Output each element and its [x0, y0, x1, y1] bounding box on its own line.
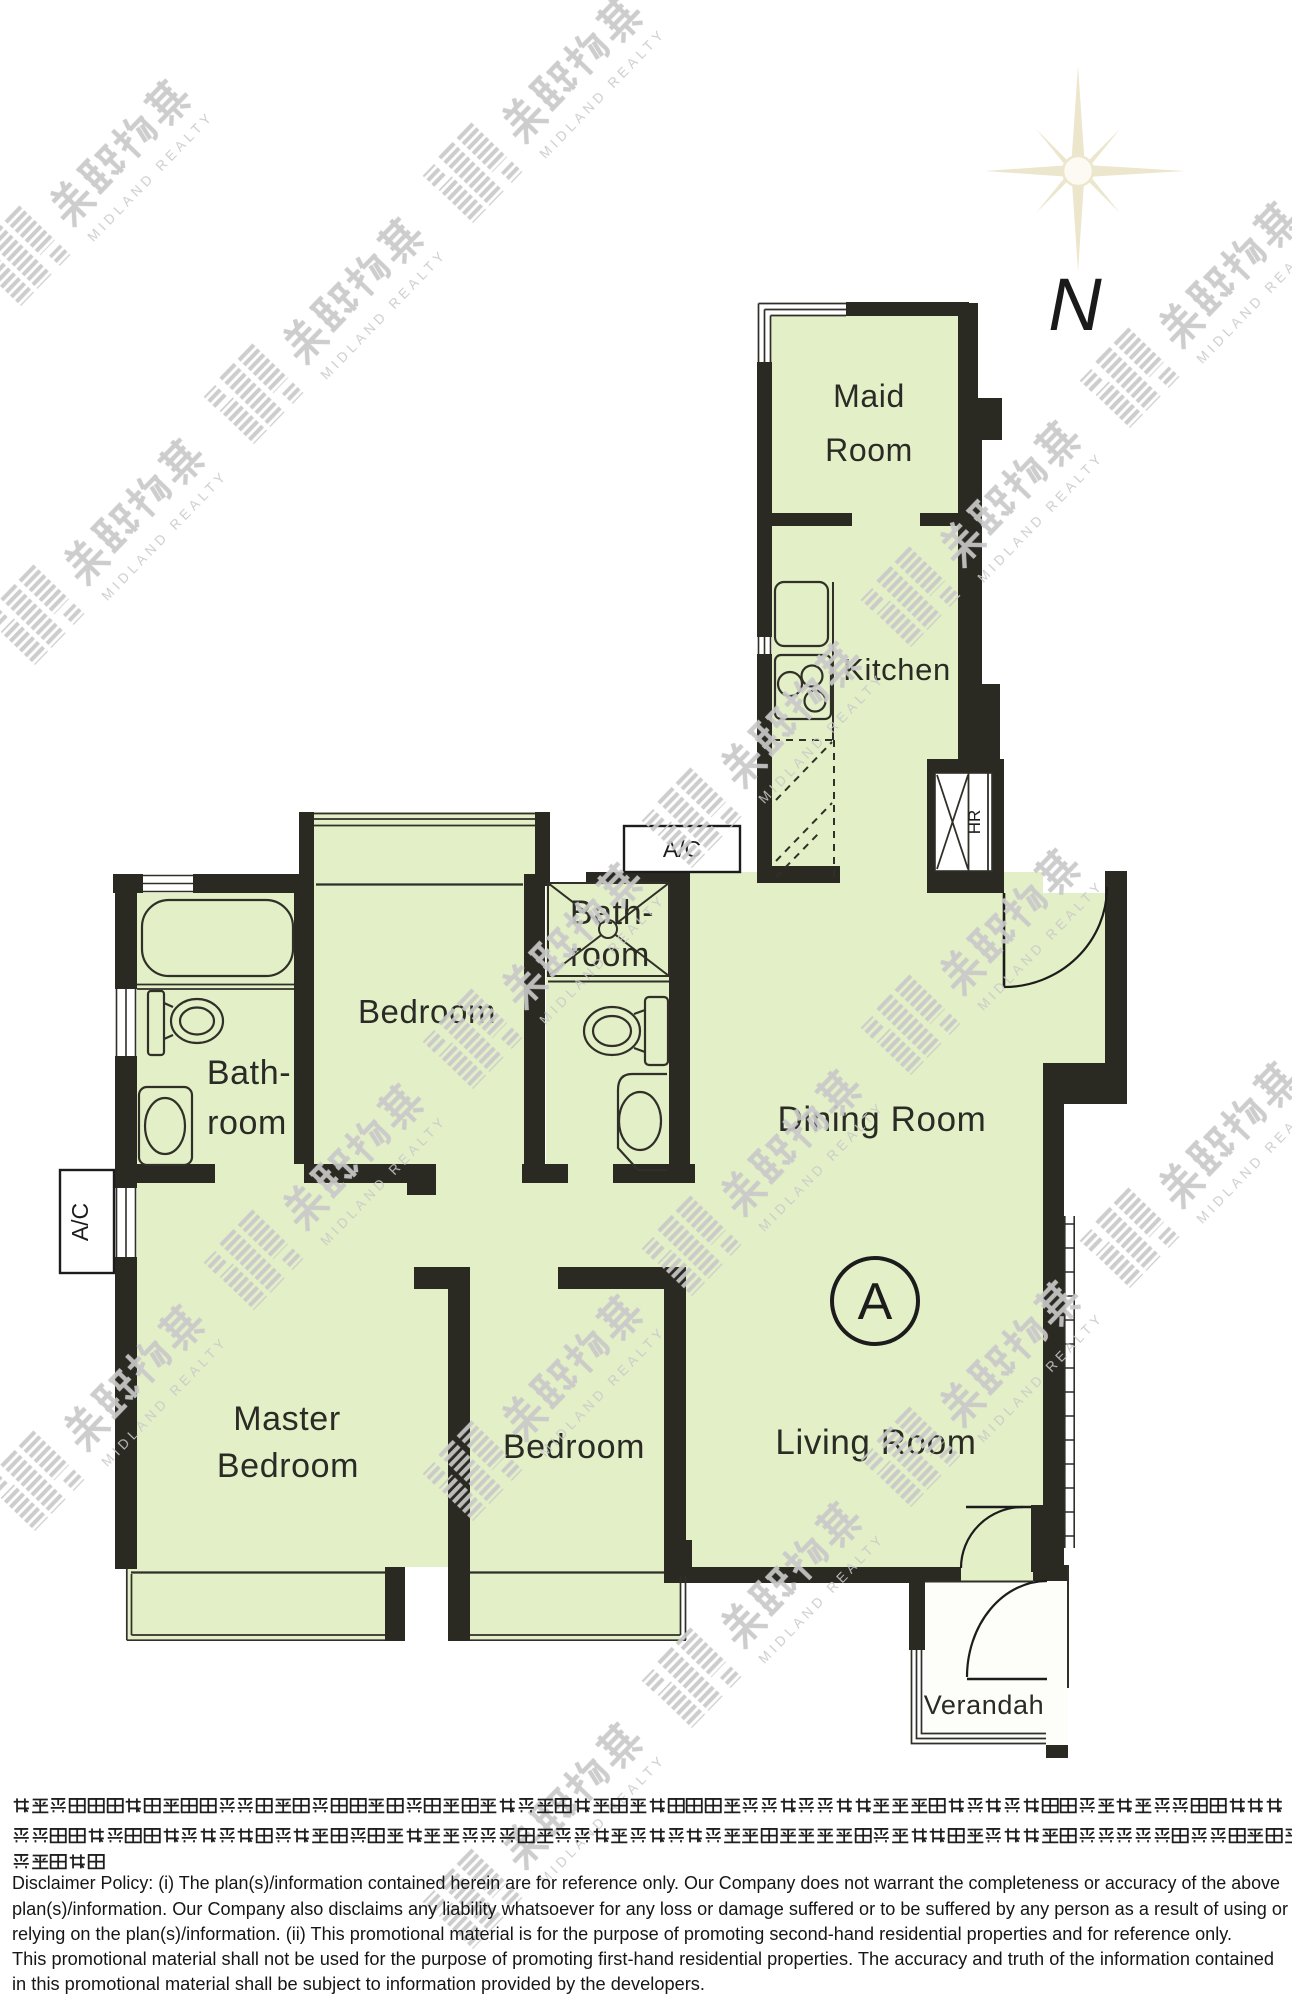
svg-text:room: room — [207, 1104, 287, 1142]
svg-text:Disclaimer Policy: (i) The pla: Disclaimer Policy: (i) The plan(s)/infor… — [12, 1872, 1280, 1893]
svg-text:HR: HR — [965, 810, 984, 835]
svg-text:N: N — [1048, 263, 1102, 346]
svg-text:plan(s)/information. Our Compa: plan(s)/information. Our Company also di… — [12, 1898, 1288, 1919]
svg-text:Bath-: Bath- — [207, 1054, 291, 1092]
svg-text:This promotional material shal: This promotional material shall not be u… — [12, 1948, 1274, 1969]
svg-text:A/C: A/C — [67, 1203, 93, 1241]
svg-text:A: A — [858, 1273, 893, 1331]
svg-text:Room: Room — [825, 432, 913, 468]
svg-text:relying on the plan(s)/informa: relying on the plan(s)/information. (ii)… — [12, 1923, 1232, 1944]
svg-text:in this promotional material s: in this promotional material shall be su… — [12, 1973, 705, 1994]
svg-text:Maid: Maid — [833, 378, 905, 414]
svg-text:Bedroom: Bedroom — [217, 1447, 359, 1485]
svg-text:Master: Master — [233, 1400, 341, 1438]
svg-text:Verandah: Verandah — [924, 1690, 1044, 1720]
